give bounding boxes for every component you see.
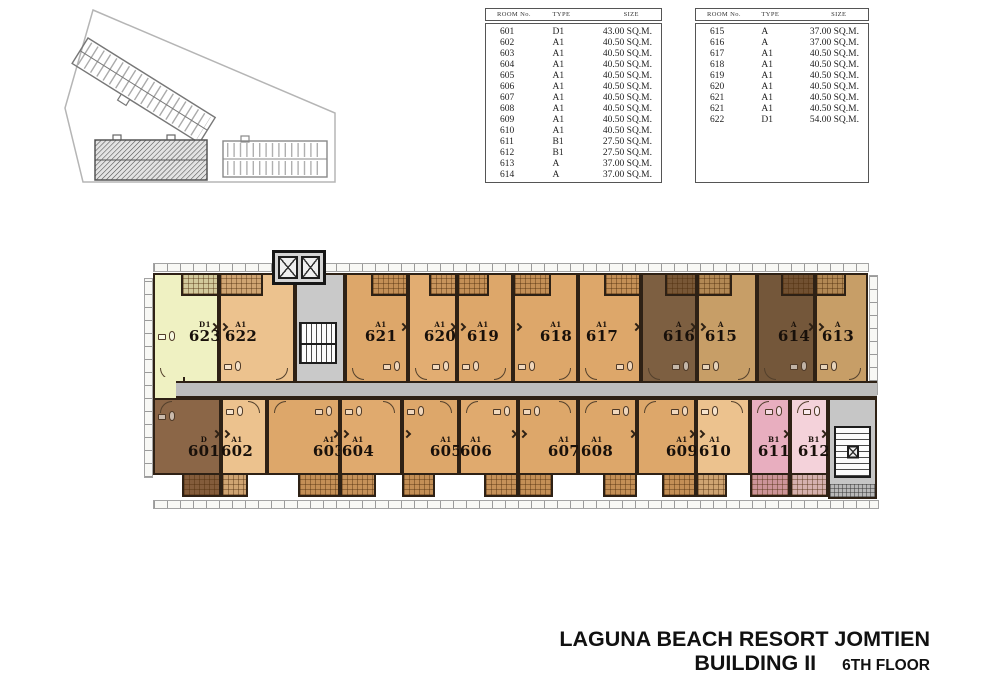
room-type-cell: B1 [553,148,602,159]
room-623: D1623 [153,273,219,383]
room-number: 605 [430,444,462,459]
door-notch [509,429,517,437]
door-notch [514,323,522,331]
room-606: A1606 [459,398,518,475]
balcony [513,273,551,296]
room-type-cell: A [761,38,809,49]
room-620: A1620 [408,273,457,383]
room-type-cell: A1 [761,71,809,82]
door-arc [248,401,260,413]
bathroom-fixtures [671,405,691,421]
table-row: 612B127.50 SQ.M. [486,148,661,159]
table-row: 616A37.00 SQ.M. [696,38,868,49]
door-arc [764,368,776,380]
room-622: A1622 [219,273,295,383]
room-number: 617 [586,329,618,344]
table-row: 606A140.50 SQ.M. [486,82,661,93]
bathroom-fixtures [493,405,513,421]
room-type-cell: A1 [761,49,809,60]
building-title: BUILDING II6TH FLOOR [559,651,930,678]
bathroom-fixtures [616,360,636,376]
bathroom-fixtures [407,405,427,421]
door-arc [383,401,395,413]
room-612: B1612 [790,398,828,475]
table-row: 619A140.50 SQ.M. [696,71,868,82]
column-header: ROOM No. [696,11,761,18]
room-number: 615 [705,329,737,344]
table-row: 614A37.00 SQ.M. [486,170,661,181]
balcony [697,273,732,296]
table-body: 601D143.00 SQ.M.602A140.50 SQ.M.603A140.… [485,23,662,183]
bathroom-fixtures [383,360,403,376]
room-size-cell: 40.50 SQ.M. [602,49,662,60]
room-size-cell: 40.50 SQ.M. [602,38,662,49]
room-no-cell: 603 [486,49,553,60]
room-label: D601 [188,436,220,459]
room-no-cell: 605 [486,71,553,82]
room-number: 619 [467,329,499,344]
room-label: A1608 [581,436,613,459]
room-no-cell: 601 [486,27,553,38]
room-type-cell: A1 [553,71,602,82]
room-number: 614 [778,329,810,344]
room-number: 611 [758,444,790,459]
door-notch [628,429,636,437]
door-arc [352,368,364,380]
room-no-cell: 610 [486,126,553,137]
room-no-cell: 621 [696,93,761,104]
balcony [181,273,219,296]
room-no-cell: 618 [696,60,761,71]
room-617: A1617 [578,273,641,383]
door-arc [415,368,427,380]
table-row: 617A140.50 SQ.M. [696,49,868,60]
room-label: A1618 [540,321,572,344]
door-arc [585,368,597,380]
room-table-1: ROOM No.TYPESIZE 601D143.00 SQ.M.602A140… [485,8,662,183]
balcony [219,273,263,296]
table-row: 602A140.50 SQ.M. [486,38,661,49]
door-arc [494,368,506,380]
room-type-cell: D1 [761,115,809,126]
room-no-cell: 617 [696,49,761,60]
room-no-cell: 612 [486,148,553,159]
room-number: 601 [188,444,220,459]
door-arc [738,368,750,380]
room-603: A1603 [267,398,340,475]
column-header: SIZE [602,11,662,18]
site-building-right [223,136,327,177]
room-601: D601 [153,398,221,475]
room-size-cell: 27.50 SQ.M. [602,137,662,148]
balcony [518,473,553,497]
column-header: TYPE [761,11,809,18]
room-607: A1607 [518,398,578,475]
room-609: A1609 [637,398,696,475]
room-number: 621 [365,329,397,344]
room-608: A1608 [578,398,637,475]
room-label: A1610 [699,436,731,459]
room-number: 607 [548,444,580,459]
room-size-cell: 40.50 SQ.M. [602,71,662,82]
door-arc [849,368,861,380]
balcony [603,473,637,497]
room-type-cell: B1 [553,137,602,148]
door-arc [797,401,809,413]
room-type-cell: A1 [553,82,602,93]
balcony [298,473,340,497]
room-619: A1619 [457,273,513,383]
room-no-cell: 621 [696,104,761,115]
balcony [484,473,518,497]
room-label: A1606 [460,436,492,459]
balcony [815,273,846,296]
table-row: 618A140.50 SQ.M. [696,60,868,71]
room-label: A613 [822,321,854,344]
room-type-cell: A1 [553,49,602,60]
room-size-cell: 40.50 SQ.M. [602,104,662,115]
bathroom-fixtures [462,360,482,376]
room-type-cell: D1 [553,27,602,38]
bathroom-fixtures [432,360,452,376]
balcony [696,473,727,497]
balcony [604,273,641,296]
door-notch [458,323,466,331]
balcony [781,273,815,296]
room-type-cell: A1 [761,104,809,115]
room-type-cell: A [553,170,602,181]
door-arc [276,368,288,380]
room-size-cell: 40.50 SQ.M. [602,60,662,71]
table-body: 615A37.00 SQ.M.616A37.00 SQ.M.617A140.50… [695,23,869,183]
table-row: 613A37.00 SQ.M. [486,159,661,170]
room-table-2: ROOM No.TYPESIZE 615A37.00 SQ.M.616A37.0… [695,8,869,183]
table-row: 615A37.00 SQ.M. [696,27,868,38]
door-notch [519,429,527,437]
room-number: 610 [699,444,731,459]
balcony [790,473,828,497]
table-row: 604A140.50 SQ.M. [486,60,661,71]
room-type-cell: A1 [761,60,809,71]
door-arc [466,401,478,413]
floor-label: 6TH FLOOR [842,657,930,674]
room-no-cell: 607 [486,93,553,104]
room-type-cell: A1 [761,93,809,104]
room-604: A1604 [340,398,402,475]
room-label: A1621 [365,321,397,344]
room-type-cell: A1 [553,104,602,115]
door-arc [440,401,452,413]
bathroom-fixtures [518,360,538,376]
stairwell-left [299,322,337,364]
column-header: TYPE [553,11,602,18]
room-size-cell: 40.50 SQ.M. [810,71,868,82]
room-no-cell: 604 [486,60,553,71]
room-label: A1604 [342,436,374,459]
room-number: 602 [221,444,253,459]
room-no-cell: 602 [486,38,553,49]
room-no-cell: 616 [696,38,761,49]
balcony [371,273,408,296]
bathroom-fixtures [790,360,810,376]
table-row: 601D143.00 SQ.M. [486,27,661,38]
door-arc [731,401,743,413]
room-number: 609 [666,444,698,459]
room-number: 622 [225,329,257,344]
room-no-cell: 620 [696,82,761,93]
room-616: A616 [641,273,697,383]
room-no-cell: 622 [696,115,761,126]
room-number: 608 [581,444,613,459]
table-row: 609A140.50 SQ.M. [486,115,661,126]
door-notch [632,323,640,331]
room-no-cell: 606 [486,82,553,93]
table-row: 607A140.50 SQ.M. [486,93,661,104]
balcony [182,473,221,497]
room-611: B1611 [750,398,790,475]
room-no-cell: 613 [486,159,553,170]
floor-plan: D1623A1622A1621A1620A1619A1618A1617A616A… [148,243,884,515]
project-title: LAGUNA BEACH RESORT JOMTIEN [559,627,930,651]
room-602: A1602 [221,398,267,475]
room-no-cell: 611 [486,137,553,148]
stair-zone-right [828,398,877,499]
room-size-cell: 40.50 SQ.M. [810,93,868,104]
bathroom-fixtures [523,405,543,421]
elevator-shaft [272,250,326,285]
corridor [176,381,877,398]
room-number: 623 [189,329,221,344]
room-number: 613 [822,329,854,344]
room-label: A1622 [225,321,257,344]
door-arc [644,401,656,413]
room-label: A1602 [221,436,253,459]
room-type-cell: A1 [553,126,602,137]
table-row: 608A140.50 SQ.M. [486,104,661,115]
room-number: 612 [798,444,830,459]
table-row: 620A140.50 SQ.M. [696,82,868,93]
room-size-cell: 40.50 SQ.M. [810,104,868,115]
room-number: 616 [663,329,695,344]
balcony [457,273,489,296]
balcony [402,473,435,497]
room-no-cell: 608 [486,104,553,115]
service-balcony-hatch [830,484,875,497]
room-614: A614 [757,273,815,383]
door-arc [274,401,286,413]
stairwell-right [834,426,871,478]
floor-plan-sheet: ROOM No.TYPESIZE 601D143.00 SQ.M.602A140… [0,0,990,700]
door-notch [399,323,407,331]
room-number: 604 [342,444,374,459]
title-block: LAGUNA BEACH RESORT JOMTIEN BUILDING II6… [559,627,930,678]
room-618: A1618 [513,273,578,383]
room-no-cell: 609 [486,115,553,126]
room-type-cell: A1 [553,38,602,49]
room-label: A1617 [586,321,618,344]
room-number: 618 [540,329,572,344]
table-row: 610A140.50 SQ.M. [486,126,661,137]
room-number: 606 [460,444,492,459]
room-label: A1609 [666,436,698,459]
table-row: 605A140.50 SQ.M. [486,71,661,82]
room-size-cell: 40.50 SQ.M. [810,49,868,60]
door-arc [559,401,571,413]
bathroom-fixtures [702,360,722,376]
room-label: A614 [778,321,810,344]
table-row: 622D154.00 SQ.M. [696,115,868,126]
elevator-car-icon [301,256,321,279]
door-arc [648,368,660,380]
table-header: ROOM No.TYPESIZE [695,8,869,21]
room-size-cell: 40.50 SQ.M. [602,82,662,93]
room-size-cell: 40.50 SQ.M. [602,126,662,137]
bathroom-fixtures [345,405,365,421]
room-610: A1610 [696,398,750,475]
room-label: A1607 [548,436,580,459]
room-size-cell: 43.00 SQ.M. [602,27,662,38]
table-header: ROOM No.TYPESIZE [485,8,662,21]
balcony-railing-top [153,263,869,272]
balcony-railing-right [869,275,878,395]
column-header: SIZE [810,11,868,18]
balcony [662,473,696,497]
room-size-cell: 54.00 SQ.M. [810,115,868,126]
door-arc [559,368,571,380]
room-no-cell: 614 [486,170,553,181]
bathroom-fixtures [224,360,244,376]
room-label: A1619 [467,321,499,344]
room-no-cell: 615 [696,27,761,38]
table-row: 621A140.50 SQ.M. [696,104,868,115]
room-label: B1612 [798,436,830,459]
room-size-cell: 40.50 SQ.M. [810,82,868,93]
room-size-cell: 37.00 SQ.M. [602,159,662,170]
room-size-cell: 27.50 SQ.M. [602,148,662,159]
room-size-cell: 40.50 SQ.M. [602,93,662,104]
room-605: A1605 [402,398,459,475]
room-no-cell: 619 [696,71,761,82]
balcony [340,473,376,497]
room-type-cell: A1 [553,115,602,126]
bathroom-fixtures [158,330,178,346]
balcony-railing-bottom [153,500,879,509]
room-621: A1621 [345,273,408,383]
room-615: A615 [697,273,757,383]
site-plan-sketch [45,8,375,208]
room-type-cell: A [553,159,602,170]
bathroom-fixtures [315,405,335,421]
balcony [665,273,697,296]
room-label: A615 [705,321,737,344]
balcony [429,273,457,296]
room-type-cell: A1 [761,82,809,93]
room-type-cell: A1 [553,93,602,104]
bathroom-fixtures [701,405,721,421]
room-label: B1611 [758,436,790,459]
room-type-cell: A1 [553,60,602,71]
room-size-cell: 40.50 SQ.M. [602,115,662,126]
room-label: A1605 [430,436,462,459]
bathroom-fixtures [612,405,632,421]
door-arc [757,401,769,413]
bathroom-fixtures [820,360,840,376]
bathroom-fixtures [672,360,692,376]
elevator-car-icon [278,256,298,279]
balcony-railing-left [144,278,153,478]
table-row: 611B127.50 SQ.M. [486,137,661,148]
table-row: 603A140.50 SQ.M. [486,49,661,60]
bathroom-fixtures [226,405,246,421]
table-row: 621A140.50 SQ.M. [696,93,868,104]
door-arc [585,401,597,413]
room-size-cell: 37.00 SQ.M. [810,27,868,38]
building-name: BUILDING II [694,651,816,675]
room-613: A613 [815,273,868,383]
room-type-cell: A [761,27,809,38]
column-header: ROOM No. [486,11,553,18]
door-arc [160,401,172,413]
door-notch [403,429,411,437]
site-building-diagonal [68,38,215,149]
stair-x-icon [847,446,859,459]
balcony [221,473,248,497]
site-building-highlighted [95,135,207,180]
room-size-cell: 40.50 SQ.M. [810,60,868,71]
room-size-cell: 37.00 SQ.M. [602,170,662,181]
balcony [750,473,790,497]
room-size-cell: 37.00 SQ.M. [810,38,868,49]
